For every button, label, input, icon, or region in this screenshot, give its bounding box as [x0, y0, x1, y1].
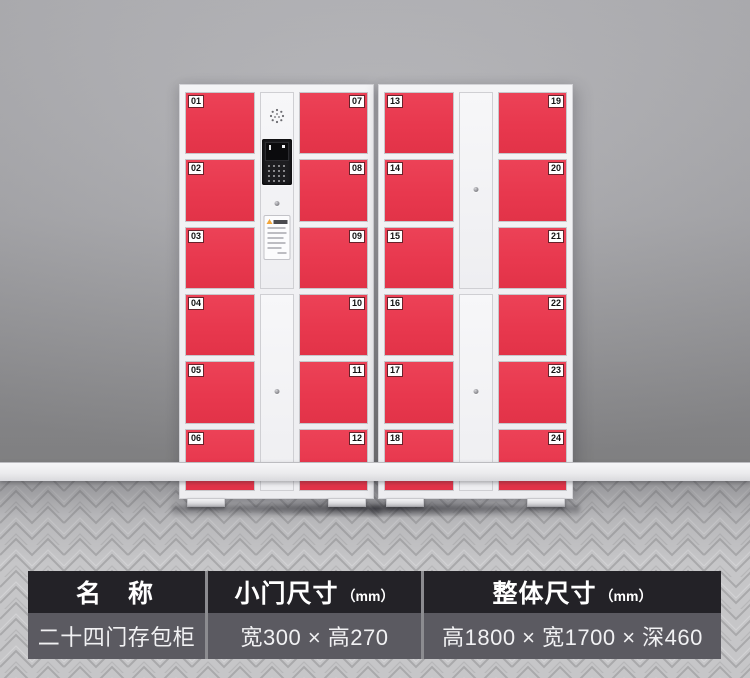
locker-door-02: 02 [185, 159, 255, 221]
keyhole-lock-icon [274, 389, 279, 394]
locker-door-24: 24 [498, 429, 568, 491]
locker-door-18: 18 [384, 429, 454, 491]
spec-header-unit: （mm） [342, 579, 395, 606]
speaker-grill-icon [268, 107, 286, 125]
locker-door-03: 03 [185, 227, 255, 289]
door-number-tag: 02 [189, 163, 203, 174]
cabinet-contact-shadow [172, 506, 381, 518]
door-number-tag: 08 [350, 163, 364, 174]
keyhole-lock-icon [473, 389, 478, 394]
locker-door-07: 07 [299, 92, 369, 154]
door-number-tag: 12 [350, 433, 364, 444]
locker-door-12: 12 [299, 429, 369, 491]
locker-door-10: 10 [299, 294, 369, 356]
door-number-tag: 11 [350, 365, 364, 376]
door-number-tag: 10 [350, 298, 364, 309]
spec-header-label: 小门尺寸 [235, 574, 339, 610]
door-number-tag: 05 [189, 365, 203, 376]
locker-door-15: 15 [384, 227, 454, 289]
spec-column-name: 名 称 二十四门存包柜 [28, 571, 205, 659]
door-number-tag: 07 [350, 96, 364, 107]
keyhole-lock-icon [274, 201, 279, 206]
door-number-tag: 04 [189, 298, 203, 309]
locker-door-11: 11 [299, 361, 369, 423]
spec-header-name: 名 称 [28, 571, 205, 613]
locker-door-05: 05 [185, 361, 255, 423]
spec-header-overall-size: 整体尺寸 （mm） [424, 571, 721, 613]
locker-door-06: 06 [185, 429, 255, 491]
spec-header-label: 整体尺寸 [493, 574, 597, 610]
blank-service-door [459, 92, 493, 289]
cabinet-body: 01 02 03 04 05 06 [180, 85, 373, 498]
locker-door-13: 13 [384, 92, 454, 154]
door-number-tag: 23 [549, 365, 563, 376]
locker-door-14: 14 [384, 159, 454, 221]
spec-value-door-size: 宽300 × 高270 [208, 613, 421, 659]
door-number-tag: 15 [388, 231, 402, 242]
door-number-tag: 01 [189, 96, 203, 107]
wall-background [0, 0, 750, 481]
door-number-tag: 21 [549, 231, 563, 242]
door-number-tag: 09 [350, 231, 364, 242]
door-number-tag: 06 [189, 433, 203, 444]
locker-cabinet-left: 01 02 03 04 05 06 [179, 84, 374, 499]
door-number-tag: 22 [549, 298, 563, 309]
locker-cabinet-right: 13 14 15 16 17 18 19 20 21 22 23 24 [378, 84, 573, 499]
locker-door-23: 23 [498, 361, 568, 423]
cabinet-body: 13 14 15 16 17 18 19 20 21 22 23 24 [379, 85, 572, 498]
screen-highlight [269, 145, 271, 150]
locker-door-19: 19 [498, 92, 568, 154]
wall-shading [0, 0, 750, 481]
warning-triangle-icon [266, 219, 272, 224]
spec-header-label: 名 称 [76, 574, 154, 610]
keypad-dots-icon [262, 163, 292, 184]
instruction-sticker [263, 215, 290, 260]
product-scene: 01 02 03 04 05 06 [0, 0, 750, 678]
door-number-tag: 13 [388, 96, 402, 107]
spec-column-door-size: 小门尺寸 （mm） 宽300 × 高270 [208, 571, 421, 659]
locker-door-01: 01 [185, 92, 255, 154]
locker-door-17: 17 [384, 361, 454, 423]
spec-column-overall-size: 整体尺寸 （mm） 高1800 × 宽1700 × 深460 [424, 571, 721, 659]
locker-door-04: 04 [185, 294, 255, 356]
camera-led [282, 145, 285, 148]
door-number-tag: 18 [388, 433, 402, 444]
locker-door-22: 22 [498, 294, 568, 356]
spec-value-name: 二十四门存包柜 [28, 613, 205, 659]
door-number-tag: 14 [388, 163, 402, 174]
locker-door-21: 21 [498, 227, 568, 289]
locker-door-16: 16 [384, 294, 454, 356]
camera-screen-icon [265, 142, 289, 161]
door-number-tag: 03 [189, 231, 203, 242]
spec-header-door-size: 小门尺寸 （mm） [208, 571, 421, 613]
control-panel-column [260, 92, 294, 289]
locker-door-08: 08 [299, 159, 369, 221]
door-number-tag: 19 [549, 96, 563, 107]
baseboard [0, 462, 750, 481]
control-terminal [262, 139, 292, 185]
cabinet-contact-shadow [371, 506, 580, 518]
door-number-tag: 24 [549, 433, 563, 444]
locker-door-09: 09 [299, 227, 369, 289]
spec-header-unit: （mm） [600, 579, 653, 606]
spec-table: 名 称 二十四门存包柜 小门尺寸 （mm） 宽300 × 高270 整体尺寸 （… [28, 571, 721, 659]
locker-door-20: 20 [498, 159, 568, 221]
spec-value-overall-size: 高1800 × 宽1700 × 深460 [424, 613, 721, 659]
door-number-tag: 20 [549, 163, 563, 174]
door-number-tag: 17 [388, 365, 402, 376]
door-number-tag: 16 [388, 298, 402, 309]
keyhole-lock-icon [473, 187, 478, 192]
